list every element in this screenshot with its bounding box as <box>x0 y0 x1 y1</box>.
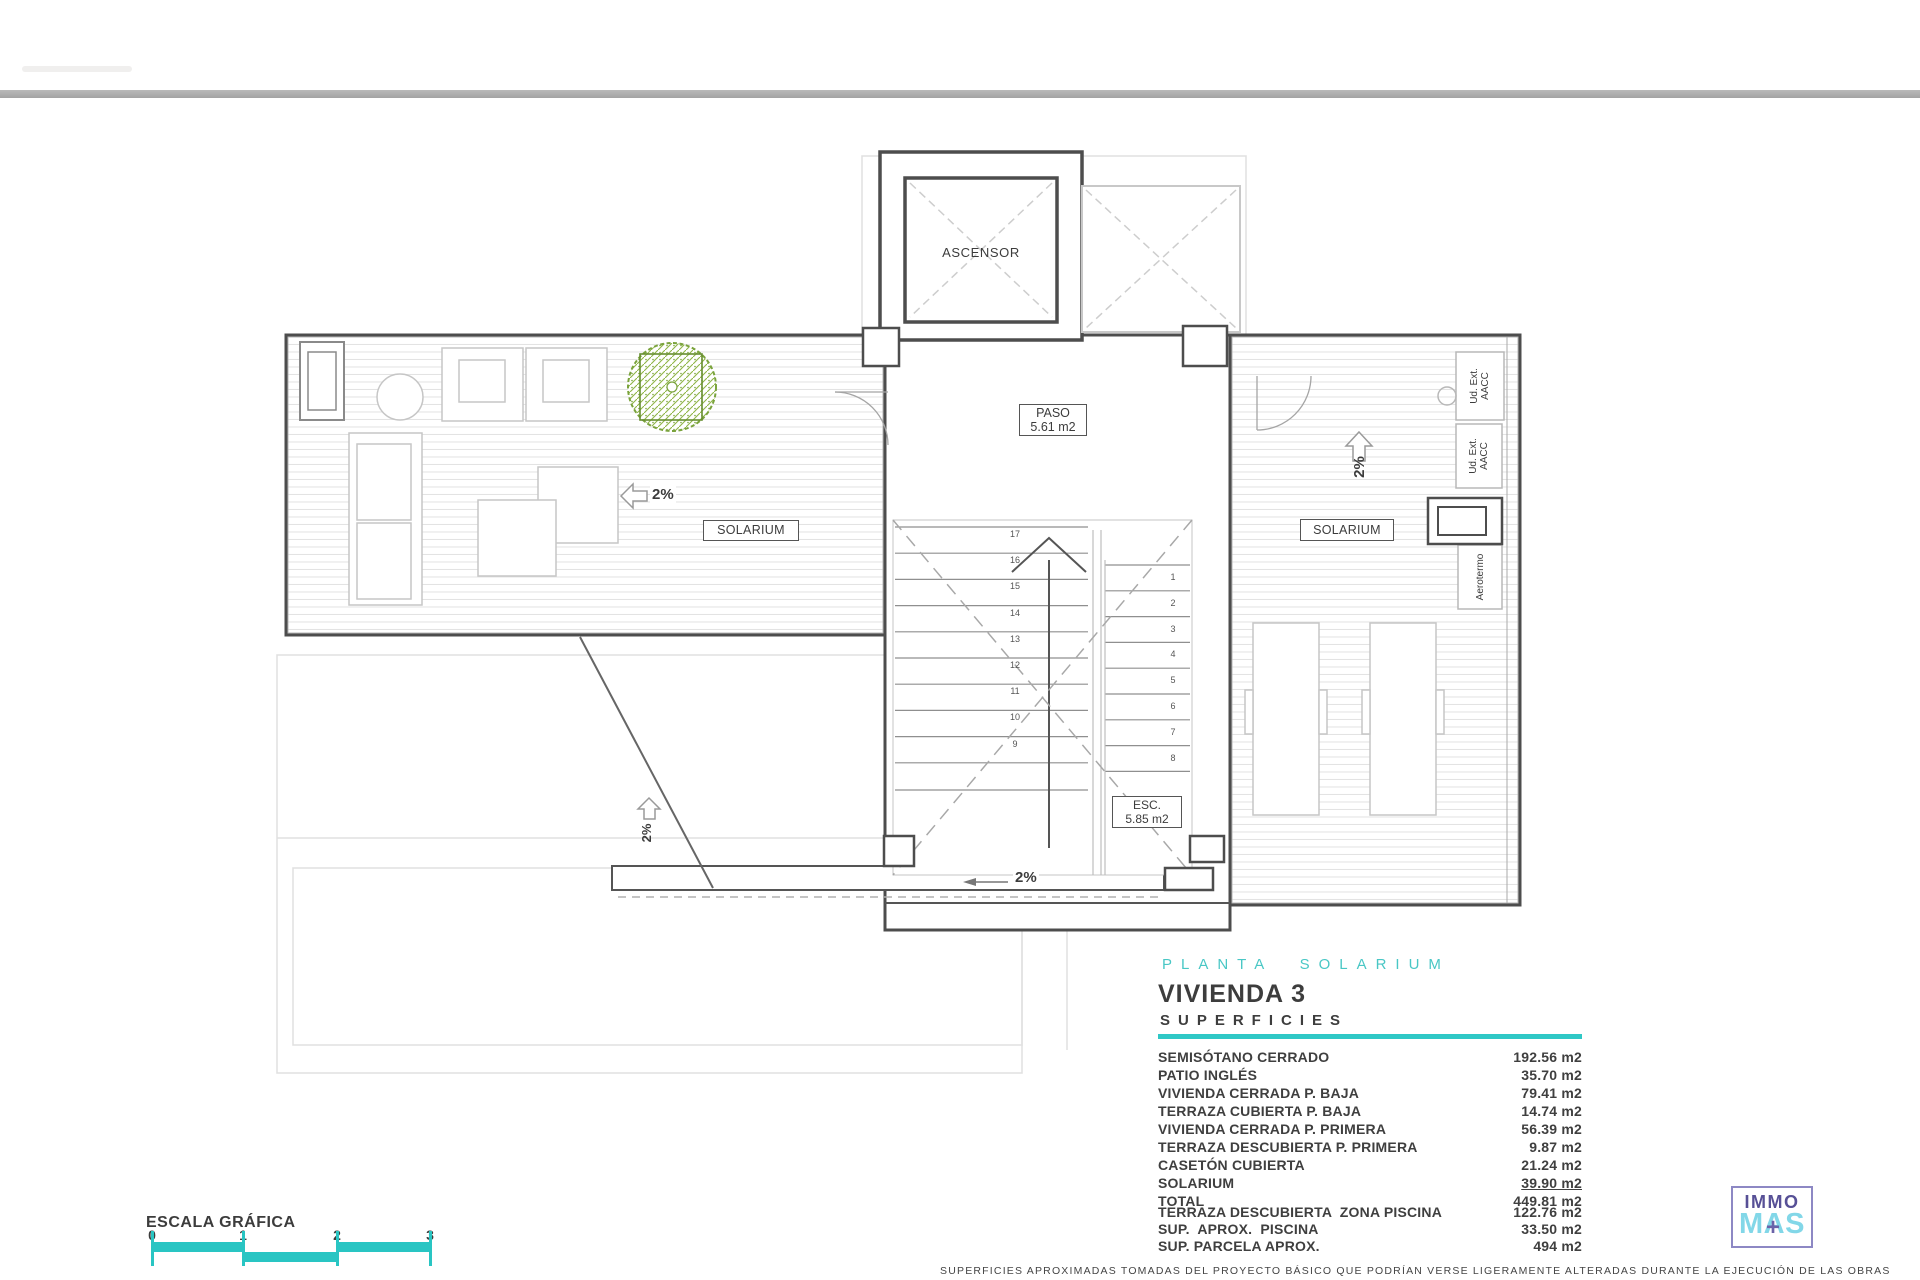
stair-tread-number: 4 <box>1164 648 1182 660</box>
surface-value: 494 m2 <box>1533 1238 1582 1255</box>
stair-tread-number: 14 <box>1006 607 1024 619</box>
scale-tick-mark <box>242 1231 245 1266</box>
surface-value: 9.87 m2 <box>1529 1138 1582 1156</box>
surface-row: SEMISÓTANO CERRADO192.56 m2 <box>1158 1048 1582 1066</box>
surface-value: 35.70 m2 <box>1521 1066 1582 1084</box>
ac-unit-label-line2: AACC <box>1479 442 1490 470</box>
tree <box>628 343 716 431</box>
surface-row: TERRAZA DESCUBIERTA ZONA PISCINA122.76 m… <box>1158 1204 1582 1221</box>
elevator-label: ASCENSOR <box>905 245 1057 260</box>
surface-label: TERRAZA DESCUBIERTA P. PRIMERA <box>1158 1138 1418 1156</box>
surface-label: PATIO INGLÉS <box>1158 1066 1257 1084</box>
immomas-logo: IMMO MAS + <box>1731 1186 1813 1248</box>
accent-rule <box>1158 1034 1582 1039</box>
aerotermo-label: Aerotermo <box>1468 547 1492 607</box>
scale-segment <box>152 1242 243 1252</box>
scale-segment <box>337 1242 430 1252</box>
surfaces-table: SEMISÓTANO CERRADO192.56 m2PATIO INGLÉS3… <box>1158 1048 1582 1210</box>
paso-room-name: PASO <box>1020 406 1086 420</box>
surface-row: TERRAZA DESCUBIERTA P. PRIMERA9.87 m2 <box>1158 1138 1582 1156</box>
ac-unit-label-2: Ud. Ext. AACC <box>1459 426 1499 486</box>
ac-unit-label-line1: Ud. Ext. <box>1468 438 1479 474</box>
surface-label: SOLARIUM <box>1158 1174 1234 1192</box>
scale-segment <box>243 1252 337 1262</box>
surfaces-extra-table: TERRAZA DESCUBIERTA ZONA PISCINA122.76 m… <box>1158 1204 1582 1255</box>
surface-value: 33.50 m2 <box>1521 1221 1582 1238</box>
stair-tread-number: 10 <box>1006 711 1024 723</box>
surface-row: SUP. PARCELA APROX.494 m2 <box>1158 1238 1582 1255</box>
stair-tread-number: 2 <box>1164 597 1182 609</box>
surface-value: 122.76 m2 <box>1513 1204 1582 1221</box>
solarium-left-label: SOLARIUM <box>703 520 799 541</box>
logo-plus-icon: + <box>1766 1216 1780 1240</box>
surface-value: 192.56 m2 <box>1513 1048 1582 1066</box>
surfaces-section-title: SUPERFICIES <box>1160 1012 1348 1029</box>
surface-value: 56.39 m2 <box>1521 1120 1582 1138</box>
disclaimer-text: SUPERFICIES APROXIMADAS TOMADAS DEL PROY… <box>940 1265 1780 1277</box>
scale-bar <box>150 1242 432 1262</box>
scale-tick-mark <box>151 1231 154 1266</box>
surface-label: TERRAZA DESCUBIERTA ZONA PISCINA <box>1158 1204 1442 1221</box>
slope-right-label: 2% <box>1344 452 1374 482</box>
stair-tread-number: 15 <box>1006 580 1024 592</box>
ac-unit-label-1: Ud. Ext. AACC <box>1460 356 1500 416</box>
ac-unit-label-line2: AACC <box>1480 372 1491 400</box>
surface-value: 39.90 m2 <box>1521 1174 1582 1192</box>
right-solarium-deck <box>1232 337 1518 903</box>
stair-room-label: ESC. 5.85 m2 <box>1112 796 1182 828</box>
stair-tread-number: 8 <box>1164 752 1182 764</box>
surface-row: VIVIENDA CERRADA P. PRIMERA56.39 m2 <box>1158 1120 1582 1138</box>
floor-plan-drawing <box>0 0 1920 1280</box>
paso-room-area: 5.61 m2 <box>1020 420 1086 434</box>
stair-tread-number: 3 <box>1164 623 1182 635</box>
stair-tread-number: 6 <box>1164 700 1182 712</box>
stair-tread-number: 11 <box>1006 685 1024 697</box>
scale-bar-title: ESCALA GRÁFICA <box>146 1214 296 1232</box>
surface-row: CASETÓN CUBIERTA21.24 m2 <box>1158 1156 1582 1174</box>
surface-label: SEMISÓTANO CERRADO <box>1158 1048 1329 1066</box>
plan-title: PLANTA SOLARIUM <box>1162 956 1450 973</box>
surface-row: PATIO INGLÉS35.70 m2 <box>1158 1066 1582 1084</box>
surface-label: SUP. APROX. PISCINA <box>1158 1221 1319 1238</box>
stair-tread-number: 5 <box>1164 674 1182 686</box>
surface-value: 14.74 m2 <box>1521 1102 1582 1120</box>
surface-label: VIVIENDA CERRADA P. BAJA <box>1158 1084 1359 1102</box>
stair-room-name: ESC. <box>1113 798 1181 812</box>
surface-label: CASETÓN CUBIERTA <box>1158 1156 1305 1174</box>
surface-row: VIVIENDA CERRADA P. BAJA79.41 m2 <box>1158 1084 1582 1102</box>
surface-label: SUP. PARCELA APROX. <box>1158 1238 1320 1255</box>
solarium-right-label: SOLARIUM <box>1300 519 1394 541</box>
equipment-box <box>1428 498 1502 544</box>
stair-tread-number: 12 <box>1006 659 1024 671</box>
surface-label: TERRAZA CUBIERTA P. BAJA <box>1158 1102 1361 1120</box>
surface-row: SOLARIUM39.90 m2 <box>1158 1174 1582 1192</box>
surface-label: VIVIENDA CERRADA P. PRIMERA <box>1158 1120 1386 1138</box>
surface-value: 21.24 m2 <box>1521 1156 1582 1174</box>
stair-tread-number: 13 <box>1006 633 1024 645</box>
stair-tread-number: 16 <box>1006 554 1024 566</box>
unit-title: VIVIENDA 3 <box>1158 980 1306 1009</box>
surface-value: 79.41 m2 <box>1521 1084 1582 1102</box>
scale-tick-mark <box>429 1231 432 1266</box>
slope-corridor-label: 2% <box>1013 869 1039 886</box>
stair-room-area: 5.85 m2 <box>1113 812 1181 826</box>
stair-tread-number: 17 <box>1006 528 1024 540</box>
plan-sheet: ASCENSOR PASO 5.61 m2 ESC. 5.85 m2 SOLAR… <box>0 0 1920 1280</box>
stair-tread-number: 1 <box>1164 571 1182 583</box>
slope-left-label: 2% <box>650 486 676 503</box>
surface-row: SUP. APROX. PISCINA33.50 m2 <box>1158 1221 1582 1238</box>
surface-row: TERRAZA CUBIERTA P. BAJA14.74 m2 <box>1158 1102 1582 1120</box>
paso-room-label: PASO 5.61 m2 <box>1019 404 1087 436</box>
stair-tread-number: 9 <box>1006 738 1024 750</box>
scale-tick-mark <box>336 1231 339 1266</box>
slope-strip-label: 2% <box>633 820 659 846</box>
stair-tread-number: 7 <box>1164 726 1182 738</box>
ac-unit-label-line1: Ud. Ext. <box>1469 368 1480 404</box>
